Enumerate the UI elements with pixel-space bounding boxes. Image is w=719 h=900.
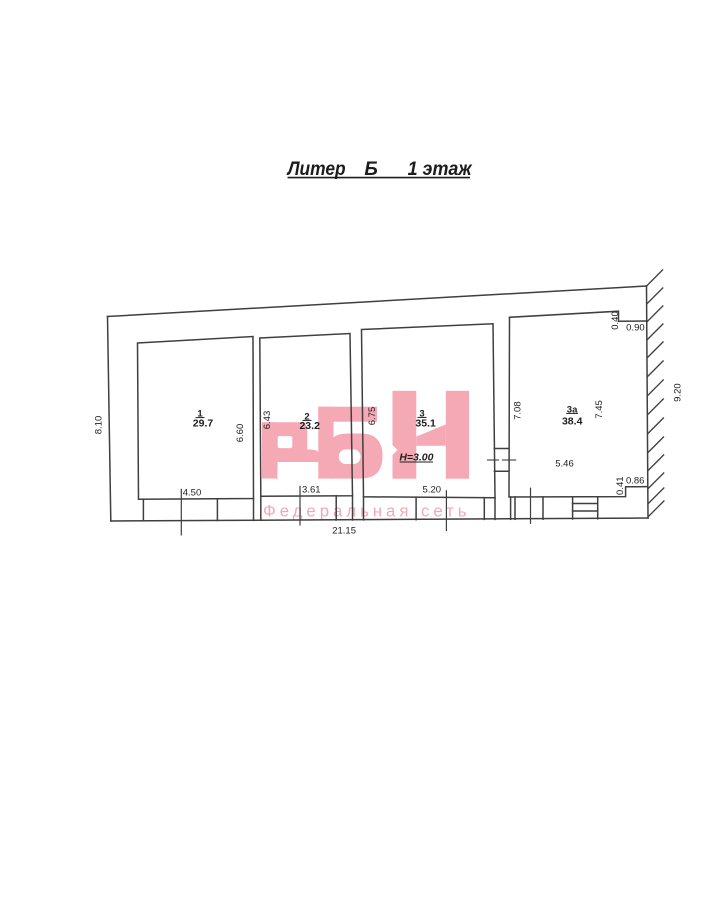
svg-text:38.4: 38.4 bbox=[562, 415, 583, 427]
svg-text:9.20: 9.20 bbox=[673, 383, 684, 402]
svg-text:23.2: 23.2 bbox=[299, 420, 320, 432]
svg-text:7.08: 7.08 bbox=[513, 401, 524, 420]
svg-text:0.86: 0.86 bbox=[626, 476, 645, 487]
svg-text:5.46: 5.46 bbox=[555, 458, 574, 469]
svg-text:Федеральная сеть: Федеральная сеть bbox=[263, 502, 471, 521]
svg-text:0.41: 0.41 bbox=[615, 476, 626, 495]
svg-text:5.20: 5.20 bbox=[423, 484, 442, 495]
svg-text:3.61: 3.61 bbox=[302, 485, 321, 496]
svg-text:6.75: 6.75 bbox=[367, 407, 378, 426]
svg-text:35.1: 35.1 bbox=[415, 418, 436, 430]
svg-text:21.15: 21.15 bbox=[332, 525, 356, 536]
svg-text:0.40: 0.40 bbox=[610, 311, 621, 330]
svg-text:8.10: 8.10 bbox=[93, 416, 104, 435]
svg-text:0.90: 0.90 bbox=[626, 323, 645, 334]
svg-text:7.45: 7.45 bbox=[594, 400, 605, 419]
svg-text:4.50: 4.50 bbox=[183, 487, 202, 498]
svg-text:29.7: 29.7 bbox=[193, 418, 214, 430]
svg-text:6.60: 6.60 bbox=[235, 424, 246, 443]
svg-text:6.43: 6.43 bbox=[262, 411, 273, 430]
